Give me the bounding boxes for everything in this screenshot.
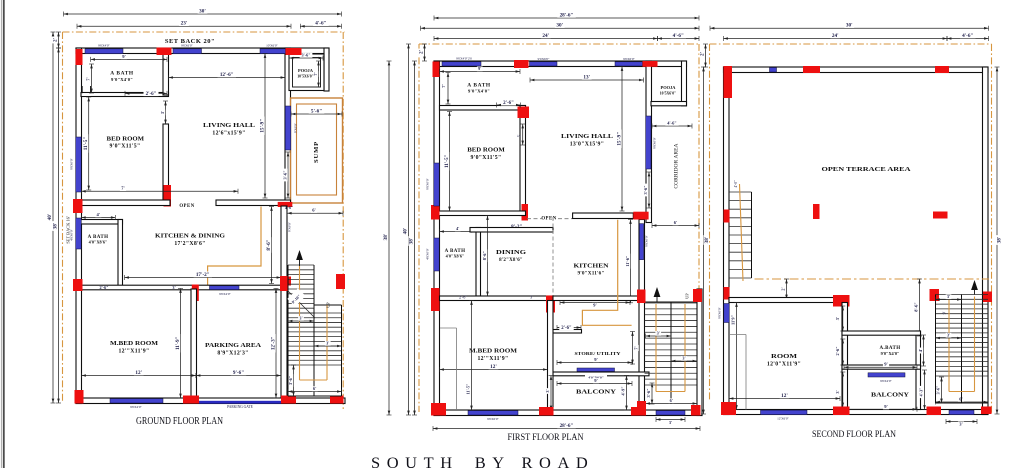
svg-text:4'-0": 4'-0" — [734, 180, 738, 188]
svg-text:3': 3' — [545, 389, 550, 392]
svg-text:38': 38' — [997, 236, 1003, 243]
svg-text:6': 6' — [670, 398, 673, 403]
svg-text:7': 7' — [634, 346, 639, 350]
svg-text:11'-5": 11'-5" — [83, 137, 89, 151]
svg-text:SUMP: SUMP — [313, 141, 320, 163]
svg-text:KITCHEN & DINING: KITCHEN & DINING — [155, 233, 226, 240]
svg-text:12'"X11'9": 12'"X11'9" — [118, 349, 149, 355]
svg-text:3'-6": 3'-6" — [301, 52, 310, 57]
svg-text:4'0X6'0": 4'0X6'0" — [70, 228, 74, 240]
svg-text:OPEN TERRACE AREA: OPEN TERRACE AREA — [822, 166, 911, 173]
svg-text:4'0"X8'6": 4'0"X8'6" — [446, 254, 465, 259]
svg-text:3': 3' — [959, 421, 963, 426]
svg-text:11'-9": 11'-9" — [175, 336, 181, 350]
svg-text:M.BED ROOM: M.BED ROOM — [469, 348, 518, 355]
svg-text:4': 4' — [97, 212, 101, 217]
svg-text:10'5X6'0": 10'5X6'0" — [660, 92, 676, 96]
svg-text:3': 3' — [326, 340, 329, 345]
svg-text:UP: UP — [326, 302, 331, 308]
svg-text:12'0"X11'9": 12'0"X11'9" — [767, 362, 801, 368]
svg-text:2': 2' — [419, 49, 425, 54]
svg-text:9': 9' — [122, 54, 126, 59]
svg-text:3': 3' — [835, 390, 840, 393]
svg-text:9': 9' — [884, 404, 888, 409]
svg-text:40': 40' — [47, 213, 53, 220]
svg-text:3': 3' — [669, 420, 672, 425]
svg-text:12'X6'0": 12'X6'0" — [777, 417, 789, 421]
svg-text:24': 24' — [832, 33, 839, 39]
svg-text:6': 6' — [312, 208, 316, 213]
svg-text:9'0X6'0": 9'0X6'0" — [653, 136, 657, 148]
svg-text:9'0"X4'0": 9'0"X4'0" — [111, 77, 133, 82]
svg-text:9'0X6'0": 9'0X6'0" — [181, 44, 193, 48]
svg-text:3': 3' — [530, 295, 533, 300]
svg-text:BED ROOM: BED ROOM — [467, 147, 505, 154]
svg-text:SECOND FLOOR PLAN: SECOND FLOOR PLAN — [812, 429, 896, 440]
svg-text:15'-9": 15'-9" — [616, 132, 622, 146]
svg-text:9': 9' — [594, 378, 598, 383]
svg-text:4'-6": 4'-6" — [962, 33, 973, 39]
svg-text:4': 4' — [456, 226, 459, 231]
svg-text:11'-6": 11'-6" — [625, 256, 630, 267]
svg-text:3': 3' — [160, 111, 165, 114]
svg-text:4'-9": 4'-9" — [621, 386, 626, 395]
svg-text:11'9": 11'9" — [731, 315, 736, 325]
svg-text:30': 30' — [846, 23, 853, 29]
svg-text:3': 3' — [299, 315, 302, 320]
svg-text:OPEN: OPEN — [179, 204, 194, 209]
svg-text:7': 7' — [121, 186, 125, 191]
svg-text:3'-6": 3'-6" — [643, 185, 648, 194]
svg-text:9'0"X4'0": 9'0"X4'0" — [468, 89, 490, 94]
svg-text:KITCHEN: KITCHEN — [574, 263, 610, 270]
svg-text:M.BED ROOM: M.BED ROOM — [110, 340, 159, 347]
svg-text:8'-6": 8'-6" — [482, 251, 487, 260]
svg-text:8'-6": 8'-6" — [914, 302, 919, 312]
svg-text:40': 40' — [403, 227, 409, 234]
svg-text:9'X6'0": 9'X6'0" — [288, 221, 292, 232]
svg-text:11'-5": 11'-5" — [444, 154, 450, 168]
svg-text:12': 12' — [490, 364, 497, 370]
svg-text:23': 23' — [181, 21, 188, 27]
svg-text:STORE/ UTILITY: STORE/ UTILITY — [575, 351, 622, 356]
svg-text:4': 4' — [918, 349, 923, 352]
svg-text:7': 7' — [313, 72, 318, 75]
svg-text:4'-6": 4'-6" — [673, 33, 684, 39]
svg-text:8'-6": 8'-6" — [266, 239, 272, 250]
svg-text:6': 6' — [674, 220, 677, 225]
svg-text:38': 38' — [704, 236, 710, 243]
svg-text:9'X6'0": 9'X6'0" — [294, 122, 298, 133]
svg-text:12': 12' — [135, 370, 142, 376]
svg-text:4'0"X8'6": 4'0"X8'6" — [89, 240, 108, 245]
svg-text:FIRST FLOOR PLAN: FIRST FLOOR PLAN — [508, 432, 584, 443]
svg-text:30': 30' — [556, 23, 563, 29]
svg-text:38': 38' — [383, 233, 389, 240]
svg-text:9'0X6'0": 9'0X6'0" — [487, 417, 499, 421]
svg-text:UP: UP — [685, 293, 690, 299]
svg-text:13'0"X15'9": 13'0"X15'9" — [570, 142, 605, 148]
svg-text:POOJA: POOJA — [298, 68, 314, 73]
svg-text:2': 2' — [781, 287, 786, 290]
svg-text:2': 2' — [700, 51, 706, 56]
svg-text:3': 3' — [947, 294, 950, 299]
svg-text:LIVING HALL: LIVING HALL — [561, 133, 614, 140]
svg-text:9'0X6'0": 9'0X6'0" — [623, 57, 635, 61]
svg-text:5'-6": 5'-6" — [311, 108, 322, 114]
svg-text:A BATH: A BATH — [110, 71, 134, 77]
svg-text:12'-6": 12'-6" — [220, 72, 234, 78]
svg-text:2'-6": 2'-6" — [835, 346, 840, 355]
svg-text:2'-6": 2'-6" — [99, 285, 108, 290]
svg-text:24': 24' — [542, 33, 549, 39]
svg-text:9': 9' — [942, 311, 947, 314]
svg-text:9'0X6'0": 9'0X6'0" — [644, 234, 648, 246]
svg-text:9': 9' — [884, 362, 888, 367]
svg-text:3': 3' — [682, 355, 685, 360]
svg-text:10'X6'0": 10'X6'0" — [266, 44, 278, 48]
svg-text:9'0X4'0"2'0: 9'0X4'0"2'0 — [456, 57, 472, 61]
svg-text:4'-6": 4'-6" — [667, 120, 677, 125]
svg-text:12'"X11'9": 12'"X11'9" — [477, 356, 508, 362]
svg-text:4'-6": 4'-6" — [285, 206, 293, 210]
svg-text:CORRIDOR AREA: CORRIDOR AREA — [674, 143, 680, 188]
svg-text:38': 38' — [53, 222, 59, 229]
svg-text:7': 7' — [441, 84, 446, 88]
svg-text:17'-2": 17'-2" — [196, 272, 210, 278]
svg-text:2': 2' — [53, 37, 59, 42]
svg-text:POOJA: POOJA — [661, 85, 677, 90]
svg-text:ROOM: ROOM — [771, 353, 798, 360]
svg-text:4'-3": 4'-3" — [919, 388, 924, 397]
svg-text:12': 12' — [781, 393, 788, 399]
svg-text:15'-9": 15'-9" — [259, 119, 265, 133]
svg-text:9'0X4'0": 9'0X4'0" — [219, 292, 231, 296]
svg-text:GROUND FLOOR PLAN: GROUND FLOOR PLAN — [136, 416, 224, 427]
svg-text:9': 9' — [593, 303, 596, 308]
svg-text:9'0X6'0": 9'0X6'0" — [538, 57, 550, 61]
svg-text:4'0X6'0": 4'0X6'0" — [426, 247, 430, 259]
svg-text:2'-6": 2'-6" — [146, 92, 157, 97]
svg-text:11'-5": 11'-5" — [466, 384, 471, 395]
svg-text:12'-3": 12'-3" — [270, 336, 276, 350]
svg-text:9'0"X11'6": 9'0"X11'6" — [577, 271, 604, 277]
svg-text:7': 7' — [85, 77, 90, 81]
svg-text:6': 6' — [313, 386, 316, 391]
svg-text:3'-6": 3'-6" — [282, 170, 287, 179]
svg-text:PARKING GATE: PARKING GATE — [227, 405, 254, 409]
svg-text:9': 9' — [478, 66, 481, 71]
svg-text:9'0"X11'5": 9'0"X11'5" — [109, 144, 140, 150]
svg-text:BALCONY: BALCONY — [871, 393, 910, 399]
svg-text:9'0"X11'5": 9'0"X11'5" — [470, 155, 501, 161]
svg-text:10'5X6'0": 10'5X6'0" — [297, 75, 313, 79]
svg-text:9'0X4'0": 9'0X4'0" — [98, 44, 110, 48]
svg-text:38': 38' — [409, 237, 415, 244]
svg-text:17'2"X8'6": 17'2"X8'6" — [174, 241, 205, 247]
svg-text:9'0X4'0": 9'0X4'0" — [130, 405, 142, 409]
svg-text:LIVING HALL: LIVING HALL — [203, 122, 256, 129]
svg-text:9': 9' — [594, 357, 598, 362]
svg-text:PARKING AREA: PARKING AREA — [205, 342, 261, 349]
svg-text:9'0X4'0": 9'0X4'0" — [880, 379, 892, 383]
svg-text:2'-6": 2'-6" — [561, 326, 572, 331]
svg-text:S O U T H B Y R O A D: S O U T H B Y R O A D — [371, 455, 589, 468]
svg-text:3'-6": 3'-6" — [288, 376, 293, 385]
svg-text:DINING: DINING — [496, 250, 527, 256]
svg-text:28'-6": 28'-6" — [560, 423, 574, 429]
svg-text:8'9"X12'3": 8'9"X12'3" — [217, 351, 248, 357]
svg-text:OPEN: OPEN — [541, 216, 556, 221]
svg-text:3'-6": 3'-6" — [936, 386, 941, 395]
svg-text:BALCONY: BALCONY — [576, 390, 617, 396]
svg-text:8'2"X8'6": 8'2"X8'6" — [499, 258, 523, 263]
svg-text:9'0X6'0": 9'0X6'0" — [426, 177, 430, 189]
svg-text:3'-6": 3'-6" — [646, 388, 651, 397]
svg-text:3': 3' — [947, 332, 950, 337]
svg-text:3': 3' — [172, 285, 175, 290]
svg-text:2'-6": 2'-6" — [459, 295, 467, 300]
svg-text:2'-6": 2'-6" — [503, 101, 514, 106]
svg-text:9'0X6'0": 9'0X6'0" — [70, 157, 74, 169]
svg-text:9'0"X4'0": 9'0"X4'0" — [881, 351, 900, 356]
svg-text:12'6"x15'9": 12'6"x15'9" — [212, 131, 245, 137]
svg-text:4'-6": 4'-6" — [315, 21, 326, 27]
svg-text:28'-6": 28'-6" — [560, 12, 574, 18]
svg-text:BED ROOM: BED ROOM — [107, 136, 145, 143]
svg-text:13': 13' — [583, 74, 590, 80]
svg-text:9'0X6'0": 9'0X6'0" — [718, 306, 722, 318]
svg-text:9'-6": 9'-6" — [233, 370, 244, 376]
svg-text:30': 30' — [199, 8, 206, 14]
svg-text:3': 3' — [657, 330, 660, 335]
svg-text:5': 5' — [517, 134, 522, 137]
svg-text:3': 3' — [835, 317, 840, 320]
